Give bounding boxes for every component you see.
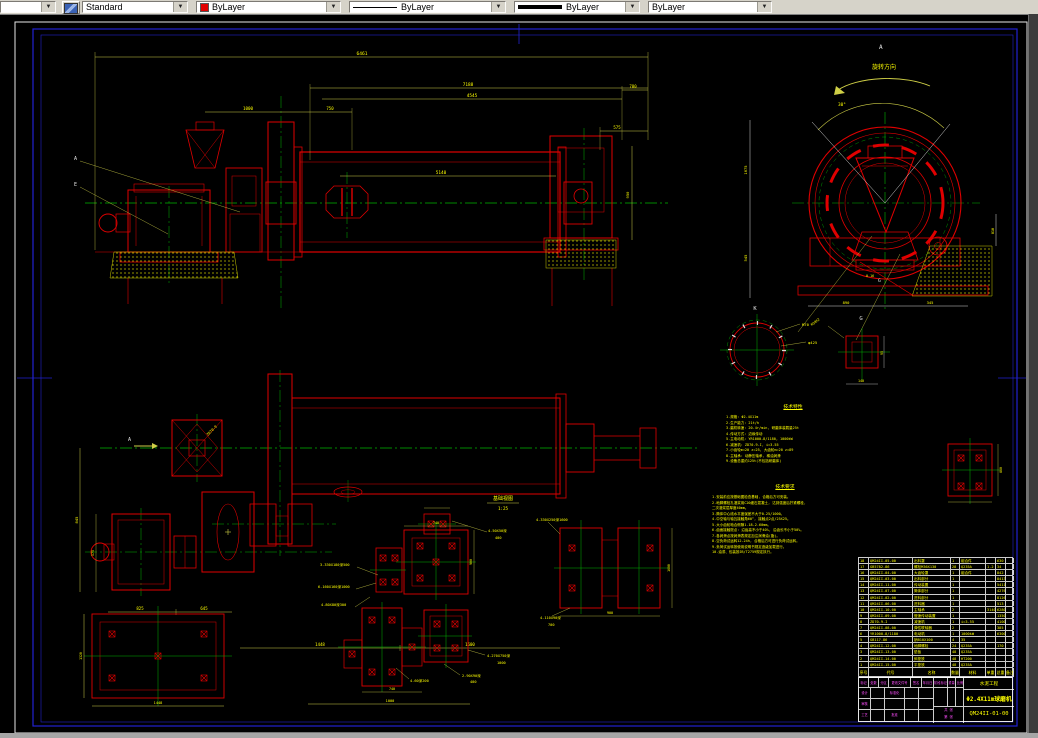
- foundation-hatch: [912, 246, 992, 296]
- dim-angle: 30°: [838, 102, 846, 108]
- bom-cell: 斜垫铁: [913, 656, 951, 661]
- bom-cell: 17: [859, 564, 869, 569]
- bom-cell: 35: [960, 637, 986, 642]
- leader-label-e: E: [74, 182, 77, 188]
- view-label-k: K: [753, 306, 757, 312]
- bom-cell: [1006, 564, 1014, 569]
- dim-780: 780: [629, 84, 637, 89]
- callout: 400: [495, 536, 502, 540]
- note-line: 9.设备总重约125t(不包括研磨体): [726, 459, 860, 465]
- product-title: Φ2.4X11m球磨机: [964, 690, 1014, 707]
- bom-cell: Q235A: [960, 564, 986, 569]
- tb-label-stage: 阶段标记: [934, 678, 948, 687]
- bom-cell: 筒体部分: [913, 588, 951, 593]
- dim-825: 825: [136, 606, 144, 611]
- bom-cell: [1006, 582, 1014, 587]
- bom-cell: 1: [951, 576, 960, 581]
- bom-cell: [1006, 601, 1014, 606]
- leader-label-a: A: [74, 156, 77, 162]
- bom-cell: [986, 631, 996, 636]
- roughness-value: 0.16: [866, 274, 874, 278]
- bom-cell: ZD70-9-I: [869, 619, 913, 624]
- bom-cell: 6: [859, 631, 869, 636]
- tech-characteristics: 技术特性 1.规格: Φ2.4X11m2.生产能力: 21t/h3.磨机转速: …: [726, 403, 860, 465]
- callout: 2-90X90深: [462, 673, 481, 678]
- cad-application-window: ▼ Standard ▼ ByLayer ▼ ByLayer ▼ ByLayer…: [0, 0, 1038, 738]
- bom-cell: [996, 662, 1006, 667]
- bom-cell: 9: [859, 613, 869, 618]
- callout: 700: [548, 623, 555, 627]
- callout: 4-80X80深300: [321, 602, 346, 607]
- bom-cell: [986, 619, 996, 624]
- tb-cell-blank: [905, 699, 919, 709]
- bom-cell: 6300: [996, 631, 1006, 636]
- bom-cell: 48: [951, 656, 960, 661]
- tech-requirements-title: 技术要求: [712, 483, 858, 490]
- bom-cell: [986, 625, 996, 630]
- bom-cell: [996, 656, 1006, 661]
- tb-label: 标记: [859, 678, 869, 687]
- k-view: M70 φ425 K: [720, 306, 817, 386]
- bom-cell: [986, 558, 996, 563]
- bom-cell: QM24II-05-00: [869, 558, 913, 563]
- callout: 1000: [497, 661, 506, 665]
- bom-cell: [996, 637, 1006, 642]
- bom-cell: QM24II-07-00: [869, 588, 913, 593]
- bom-cell: 7: [859, 625, 869, 630]
- bom-cell: 1: [951, 558, 960, 563]
- bom-cell: 大齿轮罩: [913, 570, 951, 575]
- section-label-a: A: [128, 437, 131, 443]
- bom-cell: [1006, 613, 1014, 618]
- bom-cell: [1006, 649, 1014, 654]
- bom-cell: [960, 595, 986, 600]
- bom-cell: 630: [996, 558, 1006, 563]
- bom-cell: Q235A: [960, 662, 986, 667]
- bom-cell: 1: [951, 570, 960, 575]
- bom-cell: 842: [996, 570, 1006, 575]
- dim-575: 575: [91, 550, 95, 556]
- bom-cell: 平垫铁: [913, 662, 951, 667]
- title-block-revisions: 标记 处数 分区 更改文件号 签名 年月日 设计 标准化 审核: [859, 678, 933, 723]
- bom-cell: 4: [859, 643, 869, 648]
- g-dim-95: 95: [880, 351, 884, 355]
- bom-cell: 代号: [869, 668, 913, 677]
- dim-feed: 1000: [243, 106, 254, 111]
- bom-cell: 10: [859, 607, 869, 612]
- bom-cell: 销B10X100: [913, 637, 951, 642]
- bom-cell: [986, 570, 996, 575]
- bom-cell: 1: [951, 595, 960, 600]
- bom-cell: 1: [951, 588, 960, 593]
- bom-cell: QM24II-15-00: [869, 662, 913, 667]
- dim-1448: 1448: [315, 642, 325, 647]
- bom-cell: 1: [859, 662, 869, 667]
- bom-cell: 3: [859, 649, 869, 654]
- bom-cell: [960, 582, 986, 587]
- bom-cell: i=3.55: [960, 619, 986, 624]
- bom-cell: QM24II-02-00: [869, 595, 913, 600]
- bom-cell: [960, 601, 986, 606]
- tb-label-design: 设计: [859, 688, 871, 698]
- bom-cell: [986, 637, 996, 642]
- bom-table: 18QM24II-05-00出料罩1组合件63017GB5782-86螺栓M36…: [858, 557, 1013, 677]
- bom-cell: [1006, 588, 1014, 593]
- tb-cell-blank: [919, 688, 933, 698]
- bom-cell: QM24II-06-00: [869, 601, 913, 606]
- bom-cell: 1.2: [986, 564, 996, 569]
- dim-950: 950: [625, 191, 630, 199]
- bom-cell: GB5782-86: [869, 564, 913, 569]
- bom-cell: [996, 649, 1006, 654]
- tb-label: 分区: [879, 678, 889, 687]
- tb-cell-blank: [919, 699, 933, 709]
- bom-cell: [1006, 595, 1014, 600]
- bom-cell: 4100: [996, 619, 1006, 624]
- bom-cell: 42765: [996, 588, 1006, 593]
- dim-total-length: 6461: [356, 51, 367, 57]
- bom-cell: 地脚螺栓: [913, 643, 951, 648]
- bom-cell: [1006, 656, 1014, 661]
- bom-cell: [986, 662, 996, 667]
- dim-575: 575: [613, 125, 621, 130]
- bom-cell: 备注: [1006, 668, 1014, 677]
- company-name: 水泥工程: [964, 678, 1014, 690]
- bom-cell: [1006, 607, 1014, 612]
- tech-requirements: 技术要求 1.安装前应按基础图检查基础, 合格后方可安装。2.地脚螺栓孔灌浆用C…: [712, 483, 858, 556]
- bom-cell: QM24II-13-00: [869, 649, 913, 654]
- plan-view: ZD70-9 825: [74, 370, 700, 651]
- bom-cell: 总重: [996, 668, 1006, 677]
- bom-cell: [986, 582, 996, 587]
- bom-cell: 数量: [951, 668, 960, 677]
- bom-cell: 组合件: [960, 558, 986, 563]
- bom-cell: [960, 613, 986, 618]
- bom-cell: 1350: [996, 613, 1006, 618]
- callout: 400: [470, 680, 477, 684]
- tb-sheets-total: 共 张: [934, 707, 963, 714]
- tb-label: 更改文件号: [889, 678, 911, 687]
- bom-cell: 18: [859, 558, 869, 563]
- bom-cell: [1006, 576, 1014, 581]
- dim-750: 750: [326, 106, 334, 111]
- bom-cell: 12: [859, 595, 869, 600]
- tb-cell-blank: [934, 688, 948, 706]
- tech-req-lines: 1.安装前应按基础图检查基础, 合格后方可安装。2.地脚螺栓孔灌浆用C20细石混…: [712, 495, 858, 556]
- tech-char-lines: 1.规格: Φ2.4X11m2.生产能力: 21t/h3.磨机转速: 20.4r…: [726, 415, 860, 465]
- bom-cell: Q235A: [960, 643, 986, 648]
- tb-cell-blank: [919, 710, 933, 721]
- tb-cell-blank: [871, 710, 885, 721]
- bom-cell: 1: [951, 601, 960, 606]
- bom-cell: [960, 607, 986, 612]
- bom-cell: 170: [996, 643, 1006, 648]
- foundation-scale: 1:25: [498, 506, 509, 511]
- tb-cell-blank: [948, 688, 956, 706]
- bom-cell: 8126: [996, 595, 1006, 600]
- tb-cell-blank: [871, 688, 885, 698]
- callout: 4-110X90深: [540, 615, 561, 620]
- bom-cell: QM24II-03-00: [869, 576, 913, 581]
- bom-cell: 垫板: [913, 649, 951, 654]
- foundation-hatch: [546, 240, 616, 268]
- tb-label-craft: 工艺: [859, 710, 871, 721]
- tb-label-weight: 重量: [948, 678, 956, 687]
- bom-cell: QM24II-08-00: [869, 625, 913, 630]
- callout: 4-270X750深: [487, 653, 510, 658]
- foundation-hatch: [110, 252, 238, 278]
- bom-cell: 出料部分: [913, 576, 951, 581]
- bom-cell: GB117-86: [869, 637, 913, 642]
- bom-cell: [960, 588, 986, 593]
- bom-cell: 1: [951, 613, 960, 618]
- bom-cell: [986, 656, 996, 661]
- tb-sheet-no: 第 张: [934, 714, 963, 721]
- tb-label: 处数: [869, 678, 879, 687]
- tb-label-check: 审核: [859, 699, 871, 709]
- bom-cell: 1: [951, 582, 960, 587]
- elevation-view: 6461 7188 4545 1000 750 780 575 5140 950…: [74, 51, 668, 310]
- bom-cell: 进料部分: [913, 595, 951, 600]
- bom-cell: 名称: [913, 668, 951, 677]
- bom-cell: 慢速传动装置: [913, 613, 951, 618]
- bom-cell: QM24II-04-00: [869, 570, 913, 575]
- bom-cell: 1000kW: [960, 631, 986, 636]
- bom-cell: QM24II-11-00: [869, 582, 913, 587]
- status-strip: [0, 733, 1038, 738]
- bom-cell: 4: [951, 637, 960, 642]
- bom-cell: 电动机: [913, 631, 951, 636]
- bom-cell: [1006, 619, 1014, 624]
- dim-1600: 1600: [465, 642, 475, 647]
- bom-cell: 2: [951, 625, 960, 630]
- bom-cell: [986, 576, 996, 581]
- bom-cell: 2: [951, 607, 960, 612]
- bom-cell: Q235A: [960, 649, 986, 654]
- title-block: 标记 处数 分区 更改文件号 签名 年月日 设计 标准化 审核: [858, 677, 1013, 722]
- drawing-number: QM24II-01-00: [964, 707, 1014, 721]
- dim-length: 7188: [463, 82, 474, 88]
- k-callout-d425: φ425: [808, 340, 817, 345]
- bom-cell: HT200: [960, 656, 986, 661]
- bom-cell: 减速机: [913, 619, 951, 624]
- g-callout-m30: M30X2: [810, 317, 821, 326]
- bom-cell: [1006, 662, 1014, 667]
- bom-cell: [986, 649, 996, 654]
- bom-cell: 6280: [996, 607, 1006, 612]
- bom-cell: [1006, 570, 1014, 575]
- bom-cell: 螺栓M36X130: [913, 564, 951, 569]
- view-label-g: G: [859, 316, 862, 322]
- bom-cell: 513: [996, 601, 1006, 606]
- g-dim-140: 140: [858, 379, 864, 383]
- dim-890: 890: [843, 300, 851, 305]
- bom-cell: 3140: [986, 607, 996, 612]
- bom-cell: QM24II-14-00: [869, 656, 913, 661]
- bom-cell: [986, 588, 996, 593]
- bom-cell: [1006, 558, 1014, 563]
- bom-cell: 34: [996, 564, 1006, 569]
- bom-cell: 8: [859, 619, 869, 624]
- bom-cell: [1006, 637, 1014, 642]
- dim-1600: 1600: [667, 564, 671, 572]
- bom-cell: 5411: [996, 582, 1006, 587]
- dim-900: 900: [469, 559, 473, 565]
- tb-cell-blank: [905, 710, 919, 721]
- bom-cell: [986, 601, 996, 606]
- foundation-title: 基础视图: [493, 495, 513, 502]
- title-block-right: 水泥工程 Φ2.4X11m球磨机 QM24II-01-00: [963, 678, 1014, 723]
- dim-645: 645: [200, 606, 208, 611]
- bom-cell: 1: [951, 631, 960, 636]
- tb-cell-blank: [871, 699, 885, 709]
- bom-cell: YR1000-8/1180: [869, 631, 913, 636]
- dim-1675: 1675: [743, 165, 748, 174]
- bom-cell: 弹性联轴器: [913, 625, 951, 630]
- bom-cell: 14: [859, 582, 869, 587]
- bom-cell: 主轴承: [913, 607, 951, 612]
- bom-cell: [960, 576, 986, 581]
- tb-cell-blank: [905, 688, 919, 698]
- dim-845: 845: [74, 517, 79, 524]
- dim-1000: 1000: [386, 699, 395, 703]
- dim-545: 545: [743, 255, 748, 262]
- callout: 4-50X50深: [488, 528, 507, 533]
- dim-length: 4545: [467, 93, 478, 99]
- bom-cell: [960, 625, 986, 630]
- bom-cell: 组合件: [960, 570, 986, 575]
- tb-label: 年月日: [922, 678, 933, 687]
- tb-label-approve: 批准: [885, 710, 905, 721]
- bom-cell: 单重: [986, 668, 996, 677]
- dim-900: 900: [607, 611, 613, 615]
- g-view: 140 95 M30X2 G: [810, 316, 890, 384]
- bom-cell: [1006, 631, 1014, 636]
- bom-cell: 8413: [996, 576, 1006, 581]
- tb-label: 签名: [911, 678, 922, 687]
- bom-cell: [1006, 643, 1014, 648]
- bom-cell: [1006, 625, 1014, 630]
- bom-cell: 传动装置: [913, 582, 951, 587]
- canvas-right-edge: [1028, 14, 1038, 738]
- tb-label-std: 标准化: [885, 688, 905, 698]
- detail-label-g: G: [878, 278, 881, 284]
- bom-cell: QM24II-10-00: [869, 607, 913, 612]
- bom-cell: 15: [859, 576, 869, 581]
- dim-1448: 1448: [154, 701, 163, 705]
- callout: 3-330X180深500: [320, 562, 350, 567]
- reducer-label: ZD70-9: [206, 425, 218, 437]
- bom-cell: 48: [951, 662, 960, 667]
- dim-1320: 1320: [79, 652, 83, 660]
- dim-740: 740: [433, 521, 439, 525]
- note-line: 10.油漆、包装按JB/T2759规定执行。: [712, 550, 858, 556]
- dim-shell: 5140: [436, 170, 447, 176]
- bom-cell: 1: [951, 619, 960, 624]
- dim-860: 860: [999, 467, 1003, 473]
- callout: 4-330X250深1600: [536, 517, 568, 522]
- title-block-middle: 阶段标记 重量 比例 共 张 第 张: [933, 678, 963, 723]
- callout: 6-160X160深1000: [318, 584, 350, 589]
- tech-characteristics-title: 技术特性: [726, 403, 860, 410]
- dim-740: 740: [389, 687, 395, 691]
- k-callout-m70: M70: [802, 322, 810, 327]
- bom-cell: 进料器: [913, 601, 951, 606]
- bom-cell: 13: [859, 588, 869, 593]
- view-label-a: A: [879, 44, 883, 51]
- bom-cell: 材料: [960, 668, 986, 677]
- bom-cell: [986, 595, 996, 600]
- end-view: 30° A 旋转方向 1675 545 890 345 810 0.16 G: [743, 44, 996, 340]
- callout: 4-60深200: [410, 678, 429, 683]
- bom-cell: 出料罩: [913, 558, 951, 563]
- rotation-direction-label: 旋转方向: [872, 63, 896, 71]
- bom-cell: QM24II-12-00: [869, 643, 913, 648]
- tb-cell-blank: [885, 699, 905, 709]
- bom-cell: QM24II-09-00: [869, 613, 913, 618]
- bom-cell: 24: [951, 643, 960, 648]
- bom-cell: 28: [951, 564, 960, 569]
- bom-cell: [986, 613, 996, 618]
- bom-cell: 11: [859, 601, 869, 606]
- bom-cell: 385: [996, 625, 1006, 630]
- bom-cell: 2: [859, 656, 869, 661]
- bom-cell: 5: [859, 637, 869, 642]
- bom-cell: 16: [859, 570, 869, 575]
- dim-810: 810: [991, 228, 995, 234]
- bom-cell: 序号: [859, 668, 869, 677]
- dim-345: 345: [927, 300, 934, 305]
- bom-cell: [986, 643, 996, 648]
- bom-cell: 48: [951, 649, 960, 654]
